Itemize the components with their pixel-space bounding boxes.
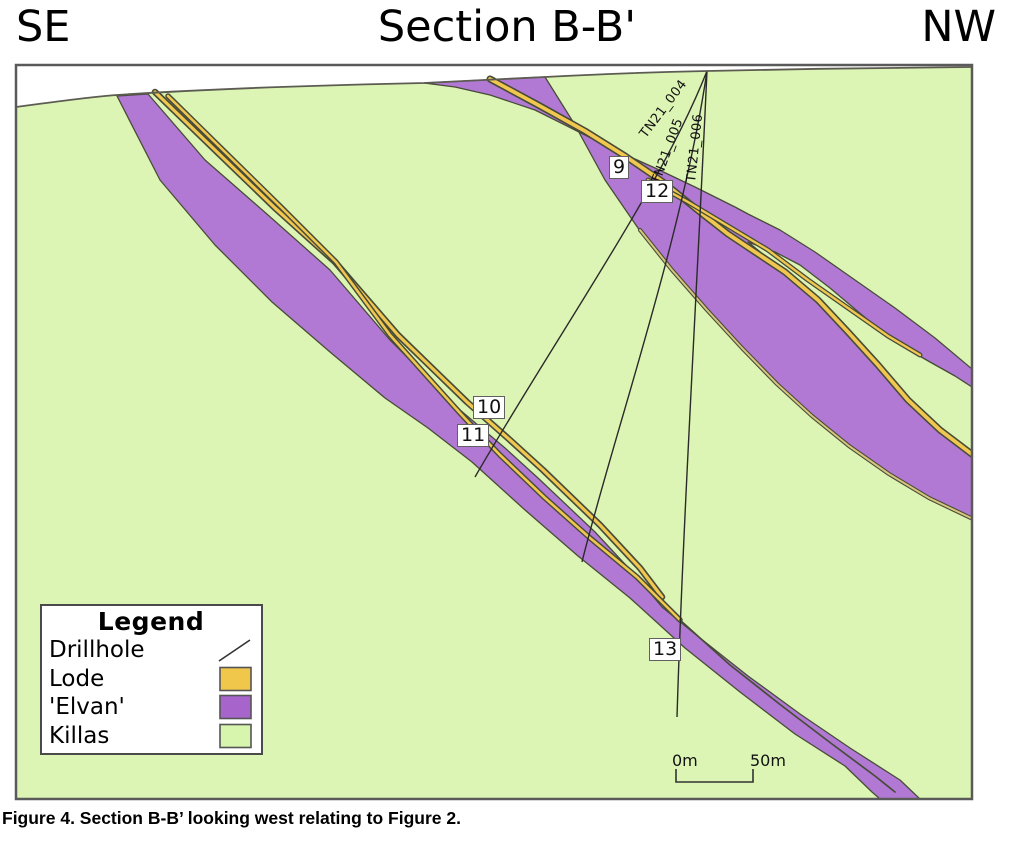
legend-row-killas: Killas xyxy=(49,722,253,751)
elvan-swatch xyxy=(211,694,253,720)
legend-label-elvan: 'Elvan' xyxy=(49,694,211,720)
orientation-label-nw: NW xyxy=(921,2,996,52)
legend-row-lode: Lode xyxy=(49,665,253,694)
figure-caption: Figure 4. Section B-B’ looking west rela… xyxy=(2,808,461,829)
marker-13: 13 xyxy=(649,638,681,661)
killas-swatch xyxy=(211,723,253,749)
legend: Legend Drillhole Lode 'Elvan' Killas xyxy=(40,604,263,755)
scale-bar-fifty-label: 50m xyxy=(750,751,786,770)
legend-label-lode: Lode xyxy=(49,666,211,692)
legend-title: Legend xyxy=(49,607,253,636)
scale-bar-zero-label: 0m xyxy=(672,751,698,770)
drillhole-line-icon xyxy=(211,637,253,664)
legend-row-elvan: 'Elvan' xyxy=(49,693,253,722)
orientation-label-se: SE xyxy=(16,2,70,52)
marker-12: 12 xyxy=(641,180,673,203)
legend-label-killas: Killas xyxy=(49,723,211,749)
section-title: Section B-B' xyxy=(0,2,1014,52)
marker-11: 11 xyxy=(457,424,489,447)
legend-row-drillhole: Drillhole xyxy=(49,636,253,665)
lode-swatch xyxy=(211,666,253,692)
marker-9: 9 xyxy=(609,156,629,179)
legend-label-drillhole: Drillhole xyxy=(49,637,211,663)
marker-10: 10 xyxy=(473,396,505,419)
